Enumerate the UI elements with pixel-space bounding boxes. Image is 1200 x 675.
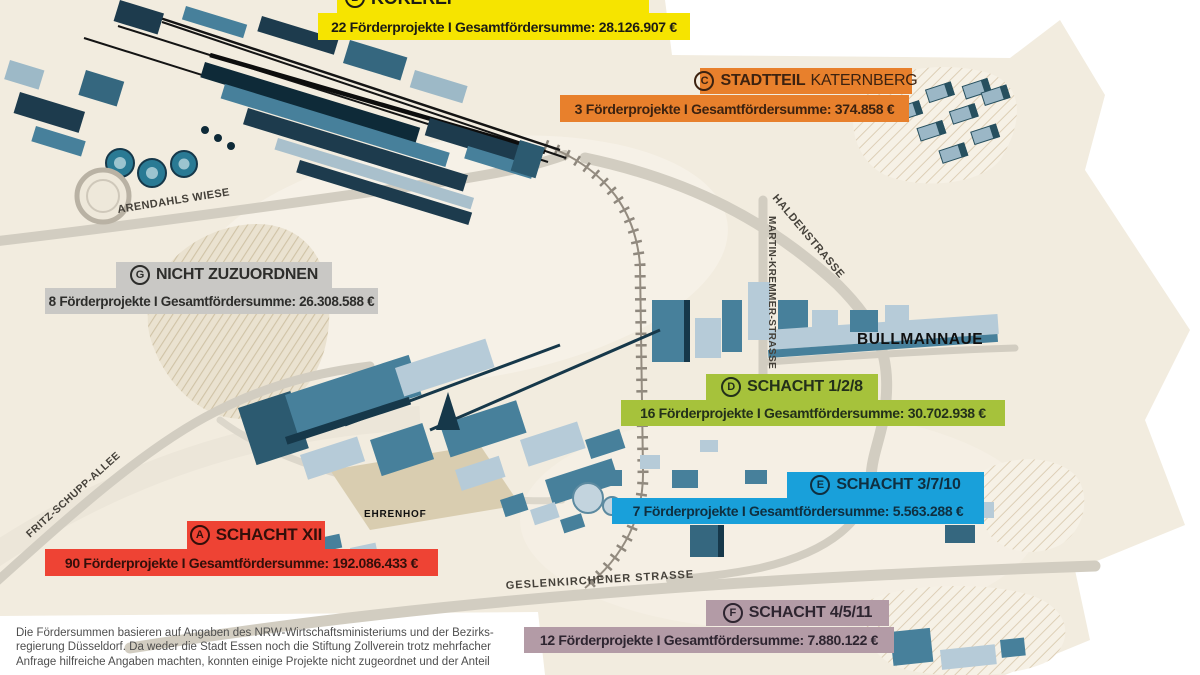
place-label-bullmannaue: BULLMANNAUE: [857, 331, 983, 348]
callout-katernberg-name: STADTTEIL: [720, 72, 805, 90]
letter-badge-a: A: [190, 525, 210, 545]
footnote-line-3: Anfrage hilfreiche Angaben machten, konn…: [16, 655, 540, 669]
callout-schacht-xii-name: SCHACHT XII: [216, 525, 322, 545]
zollverein-funding-map: ARENDAHLS WIESE HALDENSTRASSE MARTIN-KRE…: [0, 0, 1200, 675]
street-label-martin-kremmer-strasse: MARTIN-KREMMER-STRASSE: [766, 216, 777, 369]
callout-kokerei-title: B KOKEREI: [337, 0, 649, 13]
callout-schacht-3-7-10-name: SCHACHT 3/7/10: [836, 476, 960, 494]
callout-katernberg-name-light: KATERNBERG: [810, 72, 917, 90]
callout-schacht-xii-stats: 90 Förderprojekte I Gesamtfördersumme: 1…: [45, 549, 438, 576]
callout-schacht-4-5-11-stats: 12 Förderprojekte I Gesamtfördersumme: 7…: [524, 627, 894, 653]
callout-nicht-zuzuordnen-stats: 8 Förderprojekte I Gesamtfördersumme: 26…: [45, 288, 378, 314]
callout-schacht-4-5-11-name: SCHACHT 4/5/11: [749, 604, 872, 622]
letter-badge-c: C: [694, 71, 714, 91]
callout-kokerei-stats: 22 Förderprojekte I Gesamtfördersumme: 2…: [318, 13, 690, 40]
callout-schacht-xii-title: A SCHACHT XII: [187, 521, 325, 549]
callout-kokerei-name: KOKEREI: [371, 0, 452, 9]
letter-badge-e: E: [810, 475, 830, 495]
callout-schacht-1-2-8-name: SCHACHT 1/2/8: [747, 378, 863, 396]
callout-schacht-1-2-8-stats: 16 Förderprojekte I Gesamtfördersumme: 3…: [621, 400, 1005, 426]
callout-schacht-4-5-11-title: F SCHACHT 4/5/11: [706, 600, 889, 626]
source-footnote: Die Fördersummen basieren auf Angaben de…: [16, 626, 540, 669]
letter-badge-b: B: [345, 0, 365, 8]
letter-badge-d: D: [721, 377, 741, 397]
callout-schacht-3-7-10-title: E SCHACHT 3/7/10: [787, 472, 984, 498]
callout-nicht-zuzuordnen-name: NICHT ZUZUORDNEN: [156, 266, 318, 284]
letter-badge-g: G: [130, 265, 150, 285]
callout-nicht-zuzuordnen-title: G NICHT ZUZUORDNEN: [116, 262, 332, 288]
footnote-line-2: regierung Düsseldorf. Da weder die Stadt…: [16, 640, 540, 654]
callout-katernberg-title: C STADTTEIL KATERNBERG: [700, 68, 912, 94]
letter-badge-f: F: [723, 603, 743, 623]
callout-schacht-3-7-10-stats: 7 Förderprojekte I Gesamtfördersumme: 5.…: [612, 498, 984, 524]
place-label-ehrenhof: EHRENHOF: [364, 509, 427, 520]
callout-katernberg-stats: 3 Förderprojekte I Gesamtfördersumme: 37…: [560, 95, 909, 122]
footnote-line-1: Die Fördersummen basieren auf Angaben de…: [16, 626, 540, 640]
callout-schacht-1-2-8-title: D SCHACHT 1/2/8: [706, 374, 878, 400]
